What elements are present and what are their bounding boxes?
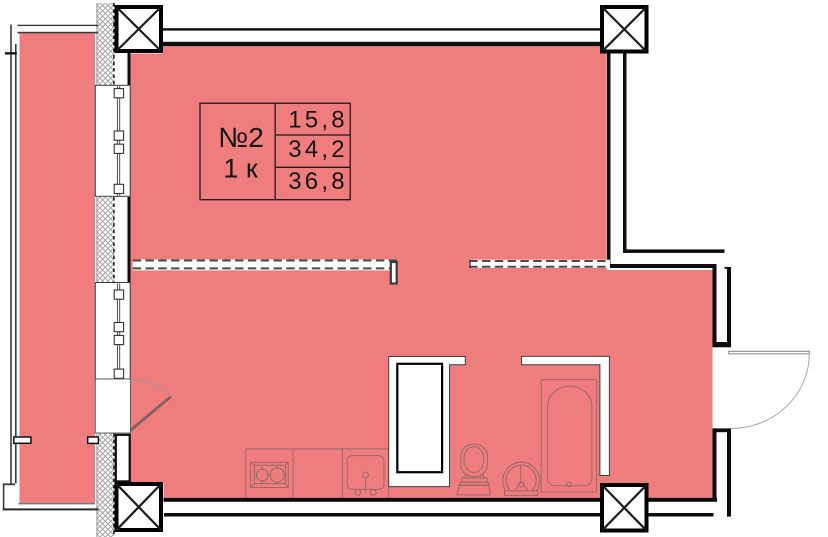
svg-text:36,8: 36,8 [288,168,348,195]
svg-text:№2: №2 [218,122,264,153]
svg-text:34,2: 34,2 [288,136,348,163]
svg-text:1 к: 1 к [223,153,258,183]
svg-text:15,8: 15,8 [288,106,348,133]
